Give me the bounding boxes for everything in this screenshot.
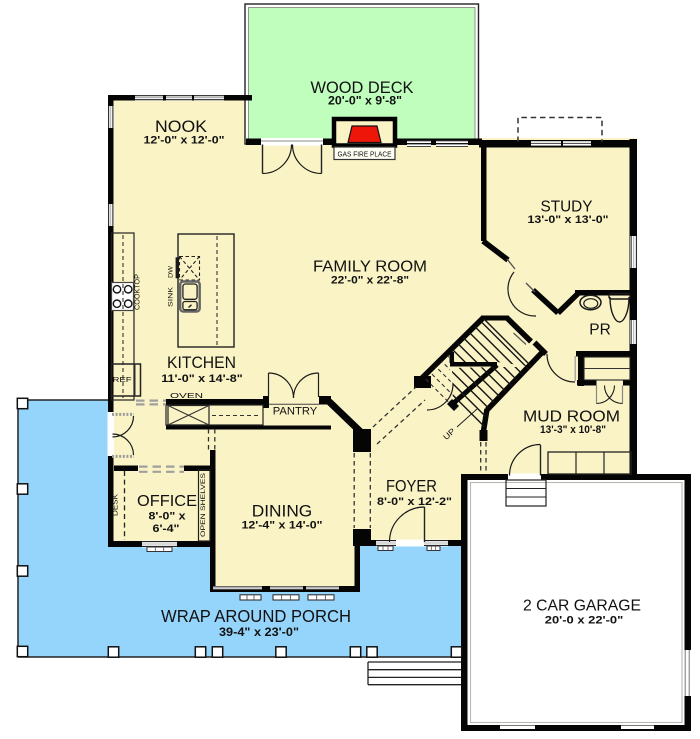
svg-text:12'-0" x 12'-0": 12'-0" x 12'-0" xyxy=(144,135,225,147)
svg-text:COOKTOP: COOKTOP xyxy=(133,274,142,310)
svg-text:39-4" x 23'-0": 39-4" x 23'-0" xyxy=(219,625,299,639)
svg-text:DW: DW xyxy=(168,265,175,278)
svg-text:DESK: DESK xyxy=(113,494,120,516)
svg-text:MUD ROOM: MUD ROOM xyxy=(523,408,620,425)
svg-text:KITCHEN: KITCHEN xyxy=(167,353,236,372)
svg-text:OVEN: OVEN xyxy=(170,393,203,400)
svg-text:SINK: SINK xyxy=(168,286,175,307)
svg-text:REF: REF xyxy=(113,377,132,384)
svg-text:20'-0 x 22'-0": 20'-0 x 22'-0" xyxy=(545,615,624,627)
svg-text:DINING: DINING xyxy=(252,503,313,521)
svg-text:OPEN SHELVES: OPEN SHELVES xyxy=(200,472,207,537)
svg-text:OFFICE: OFFICE xyxy=(137,493,197,510)
svg-text:6'-4": 6'-4" xyxy=(153,523,180,535)
svg-text:8'-0" x: 8'-0" x xyxy=(149,511,186,523)
svg-text:NOOK: NOOK xyxy=(155,118,207,136)
svg-text:11'-0" x 14'-8": 11'-0" x 14'-8" xyxy=(161,373,243,385)
svg-text:8'-0" x 12'-2": 8'-0" x 12'-2" xyxy=(377,496,452,508)
svg-text:12'-4" x 14'-0": 12'-4" x 14'-0" xyxy=(242,520,323,532)
svg-text:13'-0" x 13'-0": 13'-0" x 13'-0" xyxy=(528,214,609,226)
svg-text:FOYER: FOYER xyxy=(386,478,437,496)
svg-text:13'-3" x 10'-8": 13'-3" x 10'-8" xyxy=(540,424,606,436)
svg-text:PANTRY: PANTRY xyxy=(273,406,318,418)
svg-text:PR: PR xyxy=(589,321,611,338)
svg-text:2 CAR GARAGE: 2 CAR GARAGE xyxy=(523,598,641,615)
svg-text:WRAP AROUND PORCH: WRAP AROUND PORCH xyxy=(161,606,351,626)
svg-text:20'-0" x 9'-8": 20'-0" x 9'-8" xyxy=(328,96,402,108)
svg-text:WOOD DECK: WOOD DECK xyxy=(311,78,414,97)
svg-text:22'-0" x 22'-8": 22'-0" x 22'-8" xyxy=(331,275,409,287)
svg-text:GAS FIRE PLACE: GAS FIRE PLACE xyxy=(338,152,392,159)
svg-text:FAMILY ROOM: FAMILY ROOM xyxy=(313,259,427,276)
